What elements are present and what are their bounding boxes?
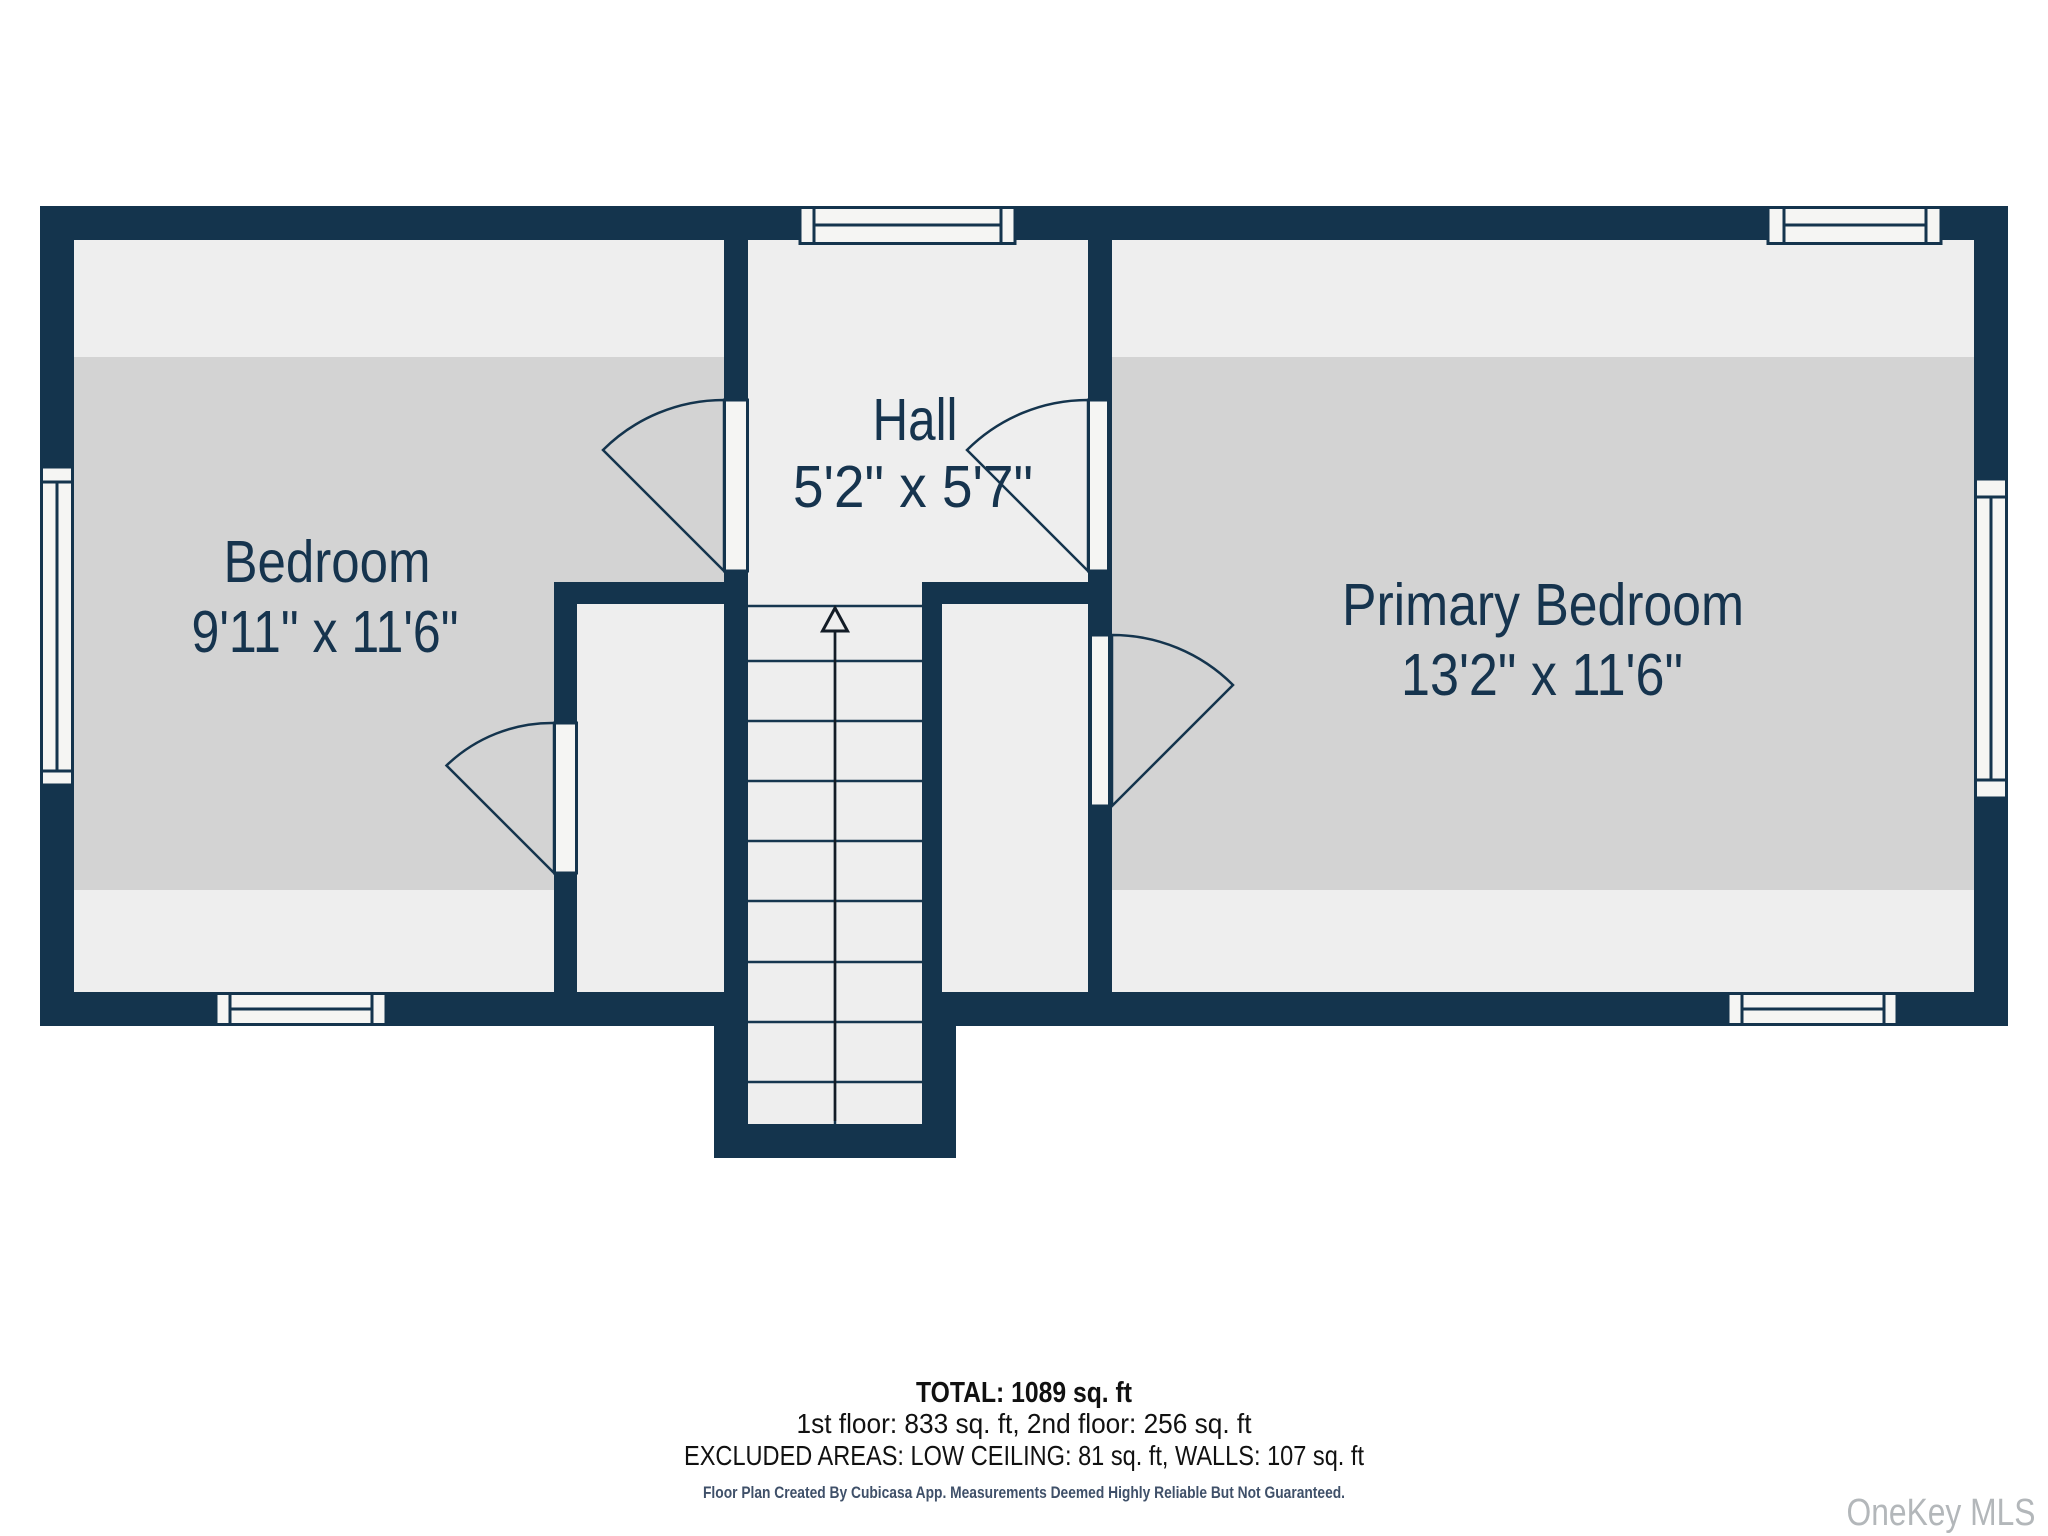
svg-text:EXCLUDED AREAS: LOW CEILING: 8: EXCLUDED AREAS: LOW CEILING: 81 sq. ft, … [684, 1440, 1364, 1471]
svg-text:1st floor: 833 sq. ft, 2nd flo: 1st floor: 833 sq. ft, 2nd floor: 256 sq… [797, 1408, 1252, 1439]
svg-text:5'2" x 5'7": 5'2" x 5'7" [793, 454, 1033, 520]
svg-text:Bedroom: Bedroom [224, 529, 431, 595]
svg-text:9'11" x 11'6": 9'11" x 11'6" [192, 599, 459, 665]
svg-text:Hall: Hall [873, 387, 958, 453]
svg-text:Primary Bedroom: Primary Bedroom [1342, 572, 1744, 638]
svg-text:Floor Plan Created By Cubicasa: Floor Plan Created By Cubicasa App. Meas… [703, 1483, 1345, 1502]
svg-text:13'2" x 11'6": 13'2" x 11'6" [1401, 642, 1683, 708]
svg-text:TOTAL: 1089 sq. ft: TOTAL: 1089 sq. ft [916, 1377, 1132, 1409]
svg-text:OneKey MLS: OneKey MLS [1847, 1492, 2036, 1534]
